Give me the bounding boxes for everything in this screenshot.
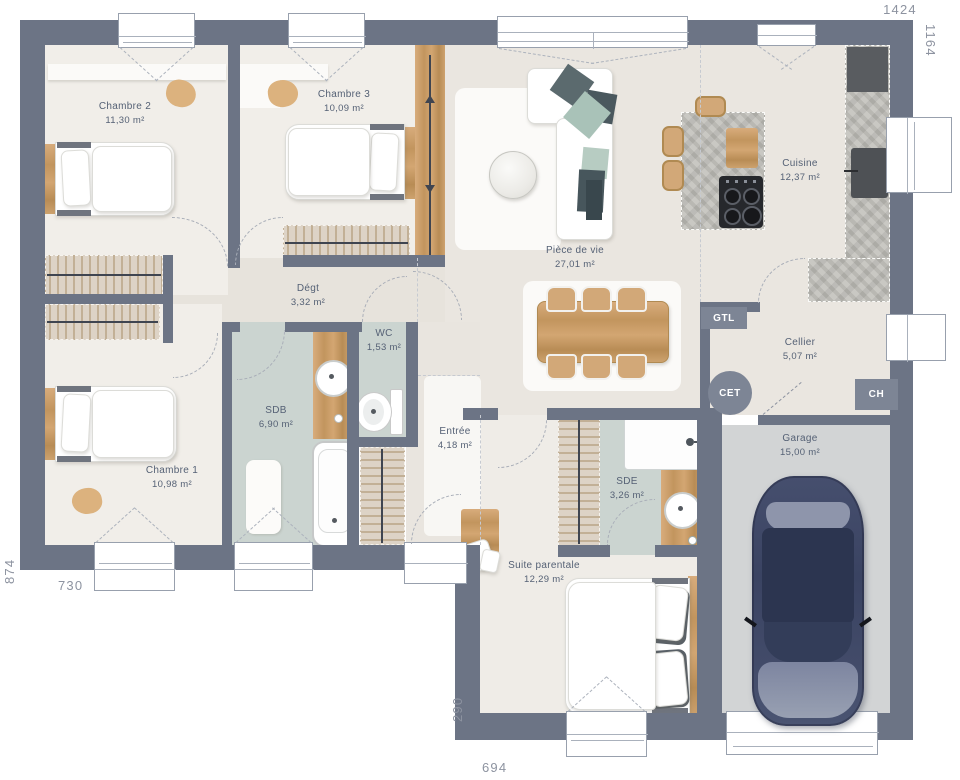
sdb-sink-drain [329, 374, 334, 379]
wall-chambre2-3 [228, 45, 240, 268]
bar-stool-3 [662, 160, 684, 191]
car-rear-window [766, 502, 850, 530]
room-label-chambre3: Chambre 3 10,09 m² [318, 87, 370, 116]
chambre2-bed-frame-top [57, 142, 91, 148]
wall-sde-bottom-a [558, 545, 610, 557]
room-label-cuisine: Cuisine 12,37 m² [780, 156, 820, 185]
sde-sink-drain [678, 506, 683, 511]
ch-badge: CH [855, 379, 898, 410]
chambre3-bed-frame-top [370, 124, 404, 130]
room-name: SDE [610, 474, 644, 489]
dimension-top: 1424 [862, 2, 938, 17]
chambre1-duvet [92, 390, 174, 458]
window-chambre2 [118, 13, 195, 48]
room-name: Garage [780, 431, 820, 446]
car-windshield [764, 622, 852, 662]
chambre1-closet-rail [47, 321, 158, 323]
room-label-suite-parentale: Suite parentale 12,29 m² [508, 558, 580, 587]
wall-hall-left [163, 255, 173, 343]
cutting-board [726, 128, 758, 168]
room-label-piece-de-vie: Pièce de vie 27,01 m² [546, 243, 604, 272]
living-wardrobe-arrow-up [425, 95, 435, 103]
room-area: 10,98 m² [146, 478, 198, 492]
kitchen-counter-return [808, 258, 890, 302]
cet-label: CET [719, 388, 741, 399]
dining-chair-6 [616, 354, 647, 380]
chambre2-shelf [48, 64, 226, 80]
chambre2-bed-frame-bottom [57, 210, 91, 216]
separator-hall-entree [417, 258, 418, 322]
dimension-bottom-inner: 290 [450, 678, 465, 722]
dining-chair-3 [616, 286, 647, 312]
room-name: Suite parentale [508, 558, 580, 573]
gtl-label: GTL [713, 313, 735, 324]
car [752, 476, 864, 726]
window-chambre3 [288, 13, 365, 48]
window-cuisine-right [886, 117, 952, 193]
bay-window-living [497, 16, 688, 48]
chambre2-pillow [61, 149, 92, 206]
dining-chair-5 [581, 354, 612, 380]
room-area: 3,32 m² [291, 296, 325, 310]
toilet-drain [371, 409, 376, 414]
room-label-garage: Garage 15,00 m² [780, 431, 820, 460]
gtl-badge: GTL [701, 307, 747, 329]
wall-chambre1-right [222, 322, 232, 545]
floor-plan: GTL CET CH Chambre 2 11,30 m² Chambre 3 … [0, 0, 960, 780]
room-label-cellier: Cellier 5,07 m² [783, 335, 817, 364]
burner-4 [742, 206, 762, 226]
separator-entree-living [418, 375, 480, 376]
room-label-chambre1: Chambre 1 10,98 m² [146, 463, 198, 492]
bath-mat [246, 460, 281, 534]
bar-stool-2 [662, 126, 684, 157]
burner-2 [743, 188, 760, 205]
separator-entree-suite [480, 415, 481, 545]
shower-drain [686, 438, 694, 446]
room-label-degagement: Dégt 3,32 m² [291, 281, 325, 310]
room-area: 5,07 m² [783, 350, 817, 364]
kitchen-sink-faucet [844, 170, 858, 172]
cet-badge: CET [708, 371, 752, 415]
cooktop-controls [726, 180, 758, 183]
room-name: Cellier [783, 335, 817, 350]
front-door [404, 542, 467, 584]
room-label-entree: Entrée 4,18 m² [438, 424, 472, 453]
room-name: Chambre 2 [99, 99, 151, 114]
chambre1-pillow [61, 393, 92, 452]
burner-1 [724, 188, 741, 205]
room-label-sdb: SDB 6,90 m² [259, 403, 293, 432]
chambre3-pillow [369, 132, 400, 191]
sde-sink [664, 492, 701, 529]
wall-left [20, 20, 45, 570]
room-name: Chambre 3 [318, 87, 370, 102]
room-label-sde: SDE 3,26 m² [610, 474, 644, 503]
room-name: WC [367, 326, 401, 341]
room-name: Entrée [438, 424, 472, 439]
suite-bed-frame-top [652, 578, 688, 584]
bathtub-drain [332, 518, 337, 523]
ch-label: CH [869, 389, 885, 400]
burner-3 [724, 208, 741, 225]
wall-suite-top-b [547, 408, 712, 420]
room-area: 12,37 m² [780, 171, 820, 185]
room-area: 1,53 m² [367, 341, 401, 355]
room-name: Pièce de vie [546, 243, 604, 258]
dining-chair-4 [546, 354, 577, 380]
entree-closet-rail [381, 449, 383, 543]
room-area: 6,90 m² [259, 418, 293, 432]
kitchen-sink [851, 148, 888, 198]
room-label-wc: WC 1,53 m² [367, 326, 401, 355]
dining-chair-1 [546, 286, 577, 312]
wall-chambre2-1 [45, 294, 163, 304]
chambre2-closet-rail [47, 274, 161, 276]
wall-wc-right [406, 322, 418, 437]
room-name: Chambre 1 [146, 463, 198, 478]
suite-duvet [568, 582, 656, 710]
sdb-soap [334, 414, 343, 423]
car-roof [762, 528, 854, 624]
dimension-left: 874 [2, 522, 17, 584]
chambre1-bed-frame-top [57, 386, 91, 392]
wall-wc-bottom [359, 437, 418, 447]
room-area: 27,01 m² [546, 258, 604, 272]
room-area: 15,00 m² [780, 446, 820, 460]
wall-chambre3-bottom [283, 255, 445, 267]
dimension-right: 1164 [923, 24, 938, 86]
room-area: 10,09 m² [318, 102, 370, 116]
chambre3-duvet [288, 128, 370, 196]
sde-soap [688, 536, 697, 545]
room-name: Dégt [291, 281, 325, 296]
wall-suite-garage [697, 408, 722, 715]
suite-dressing-rail [578, 420, 580, 544]
chambre1-bed-frame-bottom [57, 456, 91, 462]
sofa-cushion-dark-4 [586, 180, 602, 220]
dining-chair-2 [581, 286, 612, 312]
chambre3-closet-rail [285, 242, 408, 244]
living-wardrobe-arrow-down [425, 185, 435, 193]
room-area: 4,18 m² [438, 439, 472, 453]
window-cellier [886, 314, 946, 361]
room-area: 12,29 m² [508, 573, 580, 587]
wall-garage-top [758, 415, 890, 425]
dimension-bottom-left: 730 [58, 578, 114, 593]
dimension-bottom: 694 [482, 760, 538, 775]
chambre3-bed-frame-bottom [370, 194, 404, 200]
window-sdb [234, 542, 313, 591]
chambre2-duvet [92, 146, 172, 212]
room-area: 11,30 m² [99, 114, 151, 128]
coffee-table [489, 151, 537, 199]
window-suite [566, 711, 647, 757]
separator-kitchen-living [700, 45, 701, 302]
living-wardrobe-rail [429, 55, 431, 255]
room-label-chambre2: Chambre 2 11,30 m² [99, 99, 151, 128]
car-hood [758, 662, 858, 718]
wall-sdb-wc [347, 322, 359, 545]
room-name: SDB [259, 403, 293, 418]
window-cuisine [757, 24, 816, 46]
room-name: Cuisine [780, 156, 820, 171]
fridge [847, 47, 888, 92]
room-area: 3,26 m² [610, 489, 644, 503]
